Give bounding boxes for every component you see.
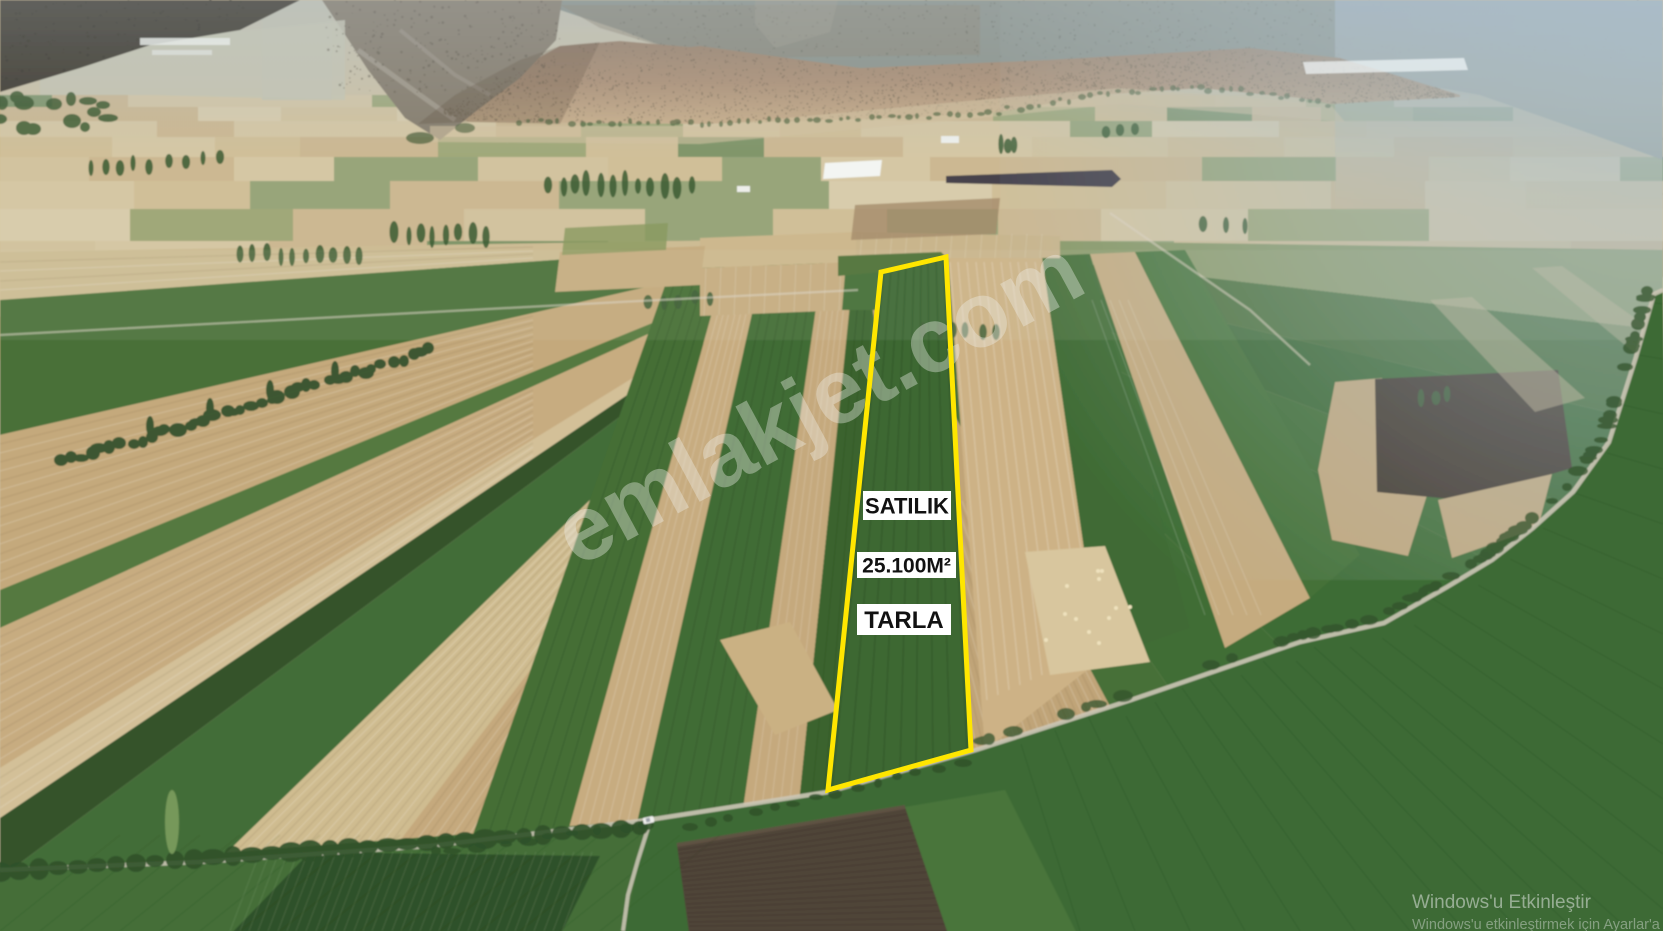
svg-text:TARLA: TARLA (864, 607, 944, 634)
svg-text:SATILIK: SATILIK (865, 493, 949, 518)
svg-text:Windows'u Etkinleştir: Windows'u Etkinleştir (1412, 892, 1592, 913)
svg-text:25.100M²: 25.100M² (862, 555, 951, 578)
svg-text:Windows'u etkinleştirmek için: Windows'u etkinleştirmek için Ayarlar'a (1412, 917, 1661, 931)
